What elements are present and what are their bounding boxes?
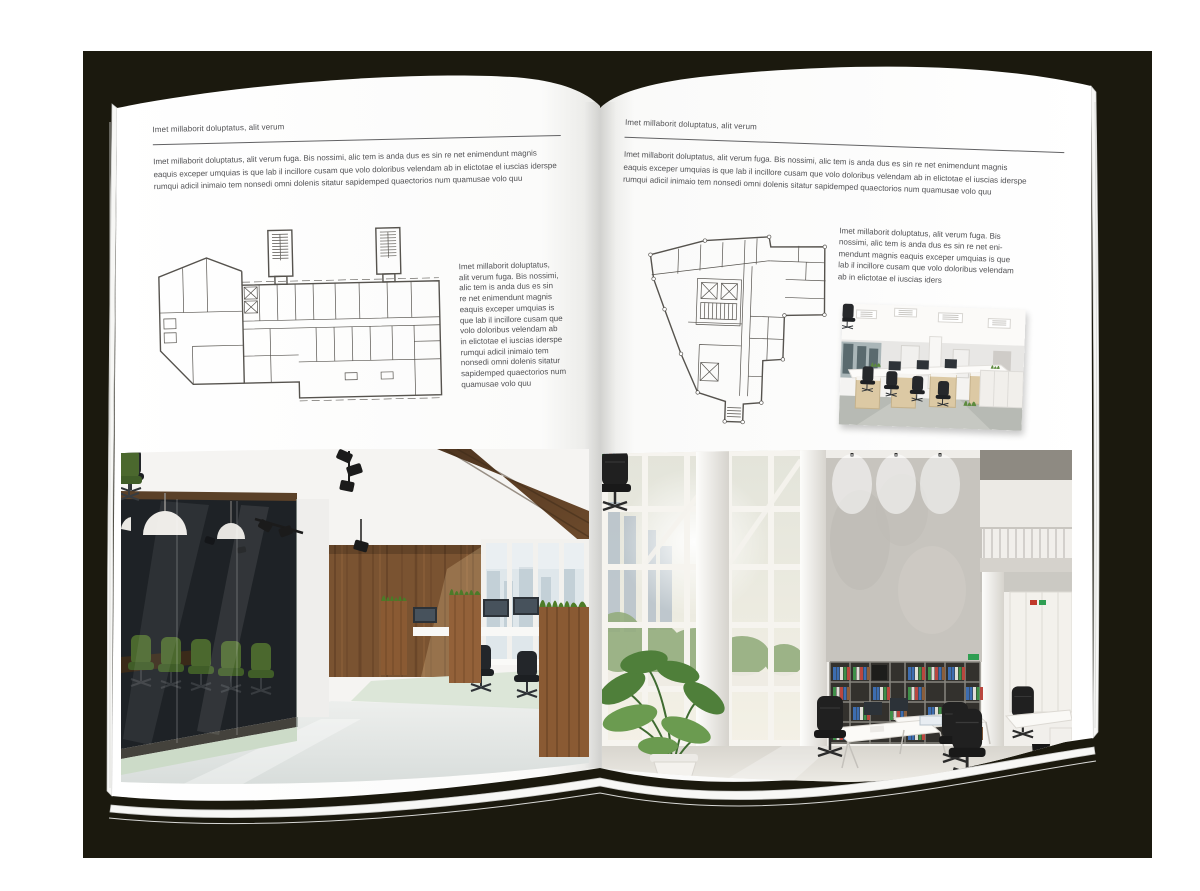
fire-sign [1030,600,1037,605]
exit-sign [1039,600,1046,605]
left-office-photo [121,449,589,785]
plan-interior-walls [158,231,442,404]
right-floor-plan [629,212,836,431]
waste-bin [1032,744,1050,768]
left-floor-plan [146,221,452,424]
right-small-photo [839,303,1026,430]
right-office-photo [602,450,1072,782]
plan-columns [643,231,829,427]
plan-outer-walls [158,227,442,401]
right-intro-paragraph: Imet millaborit doluptatus, alit verum f… [623,149,1027,201]
plan-outer-walls [645,233,827,425]
column [982,572,1004,754]
left-side-text: Imet millaborit doluptatus, alit verum f… [459,260,567,391]
left-header-rule [153,135,561,145]
left-intro-paragraph: Imet millaborit doluptatus, alit verum f… [153,147,557,194]
magazine-spread-mockup: Imet millaborit doluptatus, alit verum I… [0,0,1200,891]
right-page: Imet millaborit doluptatus, alit verum I… [592,95,1091,452]
concrete-wall [826,450,982,662]
left-page-header: Imet millaborit doluptatus, alit verum [152,122,284,134]
glass-meeting-room [121,449,297,775]
left-page: Imet millaborit doluptatus, alit verum I… [117,97,607,448]
right-side-text: Imet millaborit doluptatus, alit verum f… [838,225,1016,288]
plan-interior-walls [647,235,827,420]
right-page-header: Imet millaborit doluptatus, alit verum [625,118,757,132]
